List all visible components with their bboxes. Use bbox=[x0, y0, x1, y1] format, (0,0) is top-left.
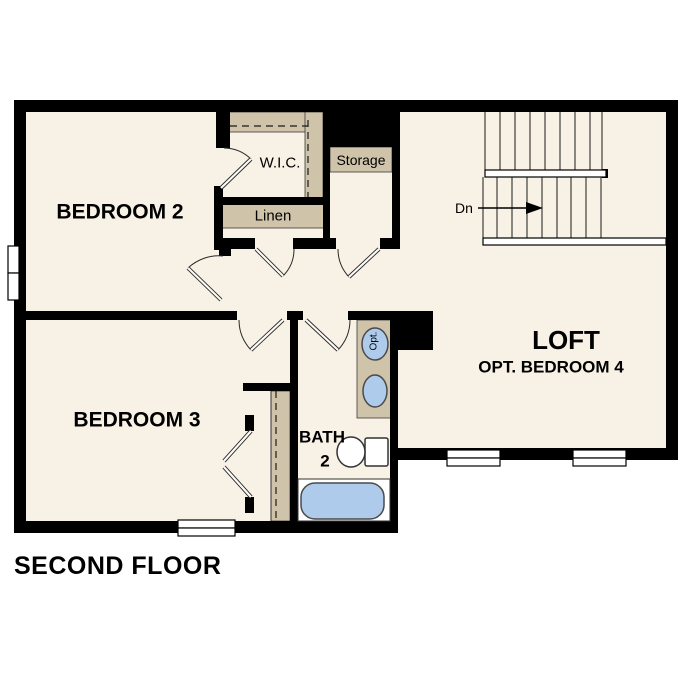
wall-closet-stub-lower bbox=[245, 497, 254, 513]
loft-sublabel: OPT. BEDROOM 4 bbox=[478, 358, 624, 377]
wall-right bbox=[666, 100, 678, 460]
wall-hall-top-b bbox=[293, 238, 336, 249]
wall-loft-bottom bbox=[390, 448, 678, 460]
bedroom2-window bbox=[8, 246, 19, 273]
stairs-down-label: Dn bbox=[455, 200, 473, 216]
wall-storage-top-mass bbox=[323, 108, 400, 147]
loft-window-1 bbox=[447, 450, 500, 458]
wall-bath-right bbox=[390, 311, 398, 533]
storage-label: Storage bbox=[336, 152, 385, 168]
vanity-sink bbox=[363, 375, 387, 407]
bedroom3-window bbox=[178, 528, 235, 536]
loft-window-2 bbox=[573, 458, 626, 466]
toilet-tank bbox=[365, 438, 388, 466]
bath-label: BATH bbox=[299, 428, 345, 447]
bedroom3-closet-shelf bbox=[271, 391, 290, 521]
loft-window-1 bbox=[447, 458, 500, 466]
bedroom3-window bbox=[178, 520, 235, 528]
page-title: SECOND FLOOR bbox=[14, 552, 221, 580]
wall-loft-corner-mass bbox=[397, 311, 433, 350]
wall-bedroom-divider bbox=[14, 311, 237, 320]
wall-storage-right bbox=[392, 108, 400, 249]
linen-label: Linen bbox=[255, 208, 292, 225]
wall-closet-top bbox=[243, 383, 298, 391]
loft-window-2 bbox=[573, 450, 626, 458]
stair-bottom-rail bbox=[483, 238, 666, 245]
wall-storage-left bbox=[323, 147, 330, 238]
wall-bedroom2-door-stub bbox=[219, 238, 231, 256]
bedroom3-label: BEDROOM 3 bbox=[73, 409, 200, 432]
stair-mid-rail bbox=[485, 170, 606, 177]
wic-label: W.I.C. bbox=[260, 155, 301, 172]
wall-bedroom2-right-upper bbox=[216, 112, 230, 148]
wall-bath-left bbox=[290, 311, 298, 533]
bath-number: 2 bbox=[320, 452, 329, 471]
floor-plan: BEDROOM 2 BEDROOM 3 W.I.C. Linen Storage… bbox=[0, 0, 687, 687]
vanity-optional-label: Opt. bbox=[369, 332, 380, 351]
bedroom2-label: BEDROOM 2 bbox=[56, 201, 183, 224]
wall-closet-stub-upper bbox=[245, 415, 254, 431]
floor-plan-drawing: BEDROOM 2 BEDROOM 3 W.I.C. Linen Storage… bbox=[0, 0, 687, 687]
bathtub bbox=[301, 483, 384, 519]
loft-label: LOFT bbox=[532, 325, 600, 355]
wall-wic-linen-divider bbox=[216, 197, 325, 205]
bedroom2-window bbox=[8, 273, 19, 300]
